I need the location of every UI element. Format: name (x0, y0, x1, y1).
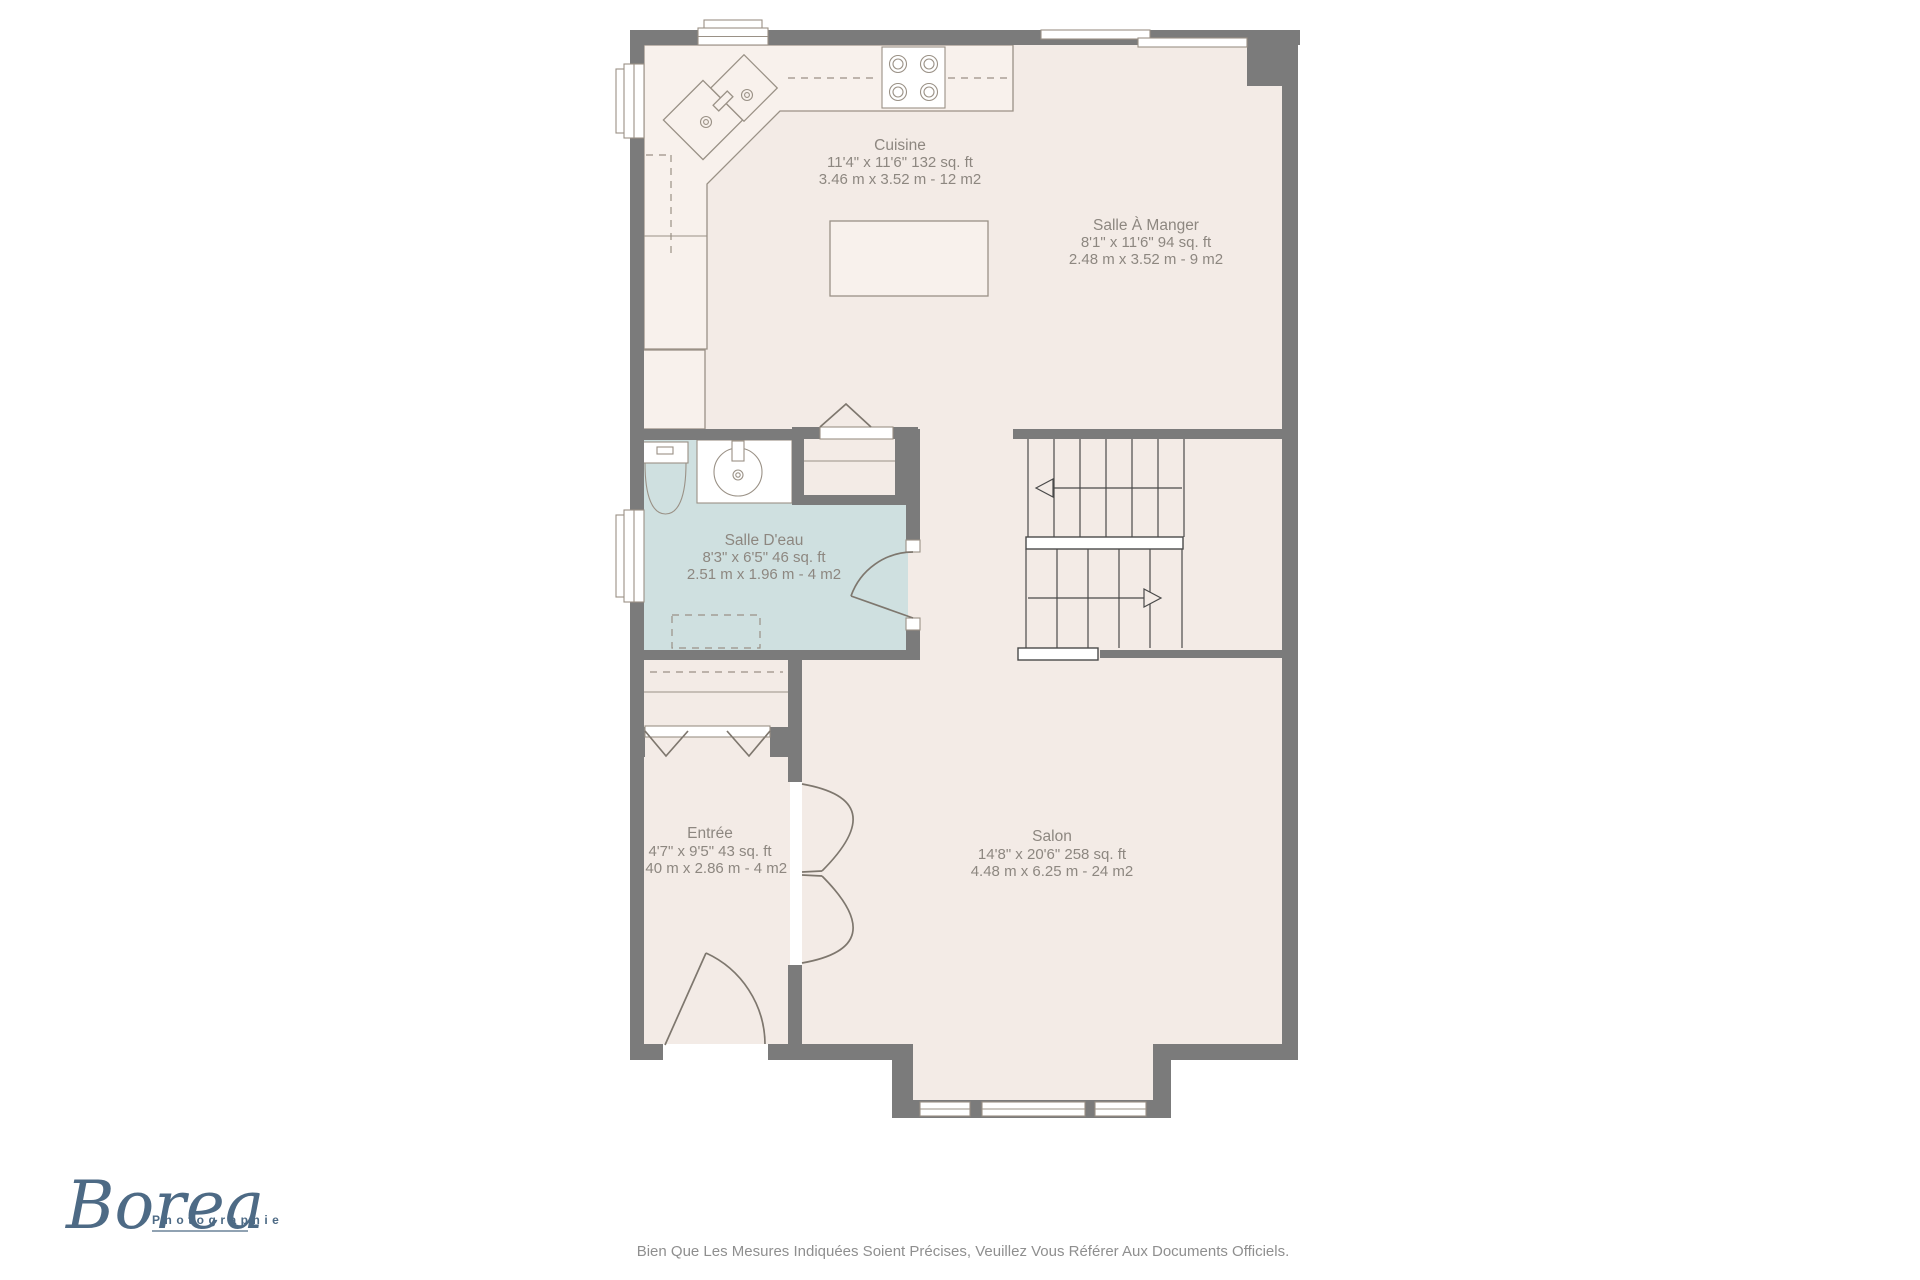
bathroom-wall-bottom (630, 650, 918, 660)
room-dims-imperial: 8'1" x 11'6" 94 sq. ft (1081, 234, 1212, 251)
bathroom-wall-top (630, 429, 792, 440)
logo-script-text: Borea (65, 1167, 264, 1244)
kitchen-window (698, 20, 768, 45)
kitchen-island (830, 221, 988, 296)
room-dims-metric: 1.40 m x 2.86 m - 4 m2 (633, 860, 787, 877)
wall-bottom-mid (768, 1044, 892, 1060)
disclaimer-text: Bien Que Les Mesures Indiquées Soient Pr… (637, 1243, 1290, 1260)
faucet (732, 441, 744, 461)
room-name: Entrée (687, 825, 733, 842)
wall-bottom-left (630, 1044, 663, 1060)
vanity-sink (697, 440, 792, 503)
bathroom-door-jamb (906, 618, 920, 630)
stairwell-wall-top (1013, 429, 1298, 439)
stair-landing (1026, 537, 1183, 549)
room-dims-metric: 3.46 m x 3.52 m - 12 m2 (819, 171, 982, 188)
room-dims-imperial: 4'7" x 9'5" 43 sq. ft (648, 843, 772, 860)
floor-plan-canvas: Cuisine 11'4" x 11'6" 132 sq. ft 3.46 m … (0, 0, 1920, 1280)
room-dims-metric: 2.48 m x 3.52 m - 9 m2 (1069, 251, 1223, 268)
door-leaf (802, 875, 822, 876)
front-door-threshold (663, 1045, 768, 1060)
wall-corner-top-right (1247, 30, 1298, 86)
sliding-panel (1138, 38, 1247, 47)
room-name: Cuisine (874, 137, 926, 154)
closet-door-post-left (792, 427, 820, 439)
bifold-stub-left (637, 727, 645, 757)
room-dims-imperial: 11'4" x 11'6" 132 sq. ft (827, 154, 974, 171)
bifold-door-slab (645, 726, 770, 737)
bathroom-wall-right-upper (906, 429, 920, 540)
sliding-panel (1041, 30, 1150, 39)
double-door-opening (790, 782, 802, 965)
logo-subtext: Photographie (152, 1213, 283, 1227)
room-dims-metric: 2.51 m x 1.96 m - 4 m2 (687, 566, 841, 583)
bifold-stub-right (770, 727, 788, 757)
room-dims-metric: 4.48 m x 6.25 m - 24 m2 (971, 863, 1134, 880)
wall-right (1282, 30, 1298, 1060)
stove (882, 47, 945, 108)
bay-floor (913, 1044, 1153, 1102)
left-window-bathroom (616, 510, 644, 602)
room-name: Salle D'eau (725, 532, 804, 549)
bay-windows (920, 1102, 1146, 1116)
closet-wall-bottom (792, 495, 918, 505)
room-dims-imperial: 14'8" x 20'6" 258 sq. ft (978, 846, 1127, 863)
stair-first-step (1018, 648, 1098, 660)
entree-wall-upper (788, 660, 802, 782)
room-name: Salle À Manger (1093, 217, 1199, 234)
wall-bottom-right (1171, 1044, 1298, 1060)
left-window-top (616, 64, 644, 138)
bathroom-door-jamb (906, 540, 920, 552)
logo: Borea Photographie (65, 1167, 283, 1244)
room-dims-imperial: 8'3" x 6'5" 46 sq. ft (702, 549, 826, 566)
fridge (641, 350, 705, 429)
closet-door-slab (820, 427, 893, 439)
room-name: Salon (1032, 828, 1072, 845)
door-leaf (802, 871, 822, 872)
stairwell-wall-bottom (1100, 650, 1284, 658)
entree-wall-lower (788, 965, 802, 1044)
closet-wall-left (792, 439, 804, 495)
